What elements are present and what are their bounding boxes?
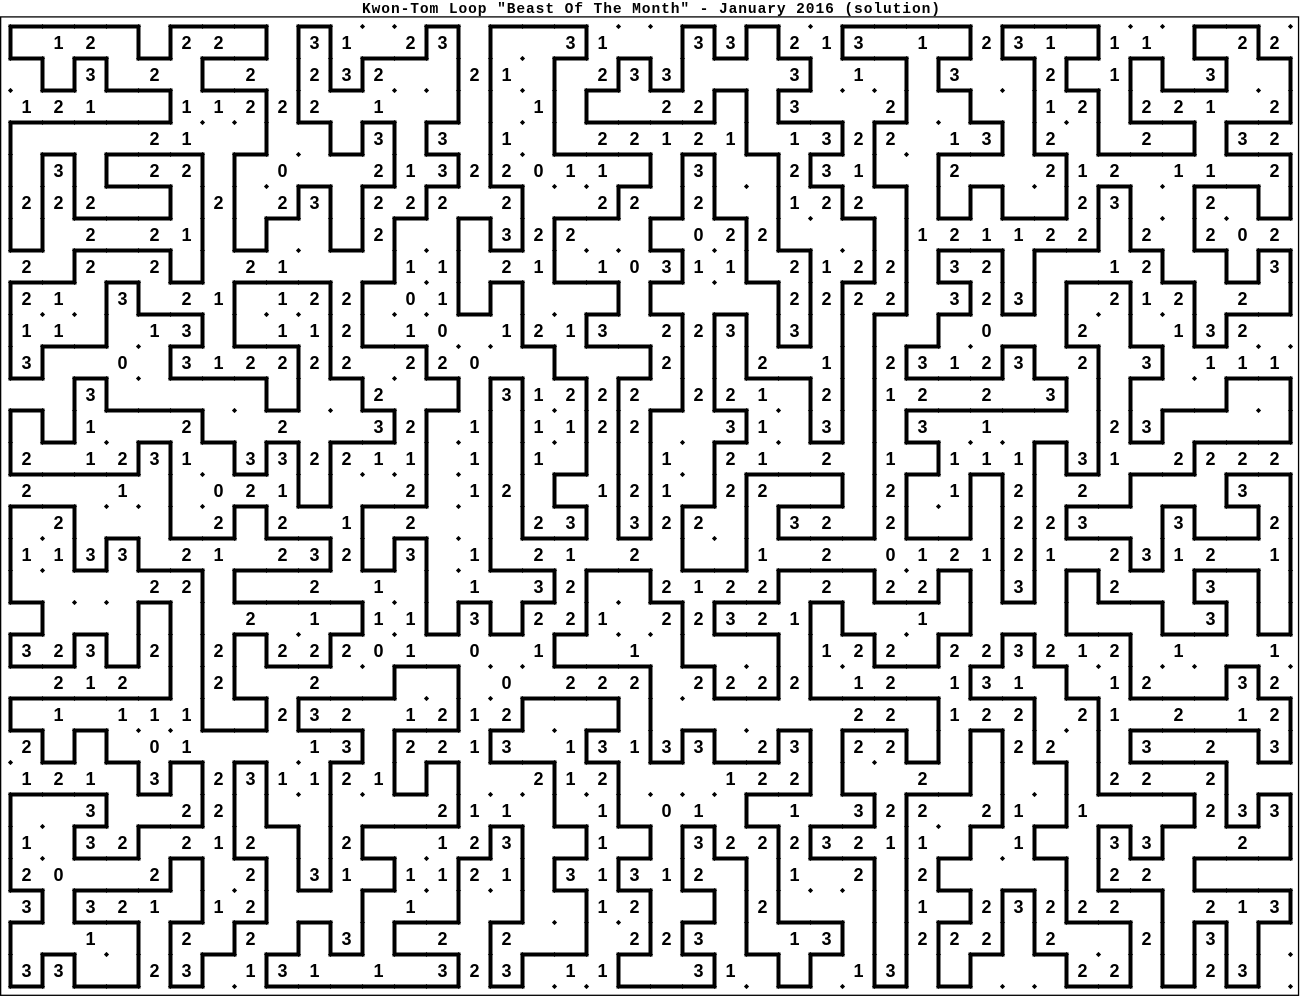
svg-text:2: 2 bbox=[981, 33, 991, 53]
svg-text:2: 2 bbox=[949, 929, 959, 949]
svg-text:0: 0 bbox=[469, 641, 479, 661]
svg-text:3: 3 bbox=[437, 33, 447, 53]
svg-text:1: 1 bbox=[85, 97, 95, 117]
svg-text:3: 3 bbox=[885, 961, 895, 981]
svg-text:3: 3 bbox=[21, 641, 31, 661]
svg-text:3: 3 bbox=[1013, 577, 1023, 597]
svg-text:2: 2 bbox=[885, 577, 895, 597]
svg-text:2: 2 bbox=[181, 289, 191, 309]
svg-text:2: 2 bbox=[213, 193, 223, 213]
svg-text:3: 3 bbox=[789, 513, 799, 533]
svg-text:1: 1 bbox=[565, 769, 575, 789]
svg-text:2: 2 bbox=[53, 193, 63, 213]
svg-text:2: 2 bbox=[949, 225, 959, 245]
svg-text:1: 1 bbox=[597, 801, 607, 821]
svg-text:1: 1 bbox=[533, 385, 543, 405]
svg-text:3: 3 bbox=[1237, 961, 1247, 981]
svg-text:2: 2 bbox=[1109, 897, 1119, 917]
svg-text:2: 2 bbox=[949, 641, 959, 661]
svg-text:1: 1 bbox=[1013, 833, 1023, 853]
svg-text:1: 1 bbox=[117, 705, 127, 725]
svg-text:1: 1 bbox=[213, 289, 223, 309]
svg-text:1: 1 bbox=[1109, 257, 1119, 277]
svg-text:3: 3 bbox=[53, 961, 63, 981]
svg-text:2: 2 bbox=[469, 961, 479, 981]
svg-text:0: 0 bbox=[437, 321, 447, 341]
svg-text:2: 2 bbox=[629, 193, 639, 213]
svg-text:2: 2 bbox=[597, 673, 607, 693]
svg-text:2: 2 bbox=[853, 129, 863, 149]
svg-text:3: 3 bbox=[1237, 129, 1247, 149]
svg-text:0: 0 bbox=[469, 353, 479, 373]
svg-text:3: 3 bbox=[1237, 673, 1247, 693]
svg-text:2: 2 bbox=[245, 929, 255, 949]
svg-text:1: 1 bbox=[757, 449, 767, 469]
svg-text:1: 1 bbox=[1269, 545, 1279, 565]
svg-text:3: 3 bbox=[309, 705, 319, 725]
svg-text:3: 3 bbox=[309, 33, 319, 53]
svg-text:0: 0 bbox=[629, 257, 639, 277]
svg-text:2: 2 bbox=[21, 865, 31, 885]
svg-text:1: 1 bbox=[405, 641, 415, 661]
svg-text:2: 2 bbox=[341, 321, 351, 341]
svg-text:1: 1 bbox=[597, 865, 607, 885]
svg-text:1: 1 bbox=[1013, 449, 1023, 469]
svg-text:1: 1 bbox=[565, 961, 575, 981]
svg-text:2: 2 bbox=[789, 161, 799, 181]
svg-text:3: 3 bbox=[1013, 641, 1023, 661]
svg-text:1: 1 bbox=[309, 609, 319, 629]
svg-text:3: 3 bbox=[917, 417, 927, 437]
svg-text:2: 2 bbox=[21, 289, 31, 309]
svg-text:2: 2 bbox=[1109, 417, 1119, 437]
svg-text:2: 2 bbox=[757, 769, 767, 789]
svg-text:2: 2 bbox=[181, 929, 191, 949]
svg-text:3: 3 bbox=[85, 833, 95, 853]
svg-text:2: 2 bbox=[437, 737, 447, 757]
svg-text:1: 1 bbox=[341, 865, 351, 885]
svg-text:2: 2 bbox=[341, 769, 351, 789]
svg-text:1: 1 bbox=[405, 705, 415, 725]
svg-text:2: 2 bbox=[693, 673, 703, 693]
svg-text:1: 1 bbox=[85, 769, 95, 789]
svg-text:0: 0 bbox=[501, 673, 511, 693]
svg-text:2: 2 bbox=[117, 673, 127, 693]
svg-text:3: 3 bbox=[725, 33, 735, 53]
svg-text:2: 2 bbox=[1109, 769, 1119, 789]
svg-text:2: 2 bbox=[1269, 161, 1279, 181]
svg-text:2: 2 bbox=[21, 193, 31, 213]
svg-text:1: 1 bbox=[1013, 225, 1023, 245]
svg-text:2: 2 bbox=[565, 673, 575, 693]
svg-text:2: 2 bbox=[1077, 353, 1087, 373]
svg-text:3: 3 bbox=[501, 225, 511, 245]
svg-text:2: 2 bbox=[149, 161, 159, 181]
svg-text:1: 1 bbox=[789, 193, 799, 213]
svg-text:1: 1 bbox=[1237, 897, 1247, 917]
svg-text:1: 1 bbox=[501, 129, 511, 149]
svg-text:2: 2 bbox=[1237, 33, 1247, 53]
svg-text:1: 1 bbox=[85, 929, 95, 949]
svg-text:3: 3 bbox=[1141, 737, 1151, 757]
svg-text:2: 2 bbox=[693, 97, 703, 117]
svg-text:2: 2 bbox=[85, 193, 95, 213]
svg-text:3: 3 bbox=[1173, 513, 1183, 533]
svg-text:1: 1 bbox=[597, 257, 607, 277]
svg-text:3: 3 bbox=[821, 929, 831, 949]
svg-text:2: 2 bbox=[181, 545, 191, 565]
svg-text:1: 1 bbox=[53, 545, 63, 565]
svg-text:1: 1 bbox=[661, 129, 671, 149]
svg-text:2: 2 bbox=[885, 513, 895, 533]
svg-text:1: 1 bbox=[917, 545, 927, 565]
svg-text:1: 1 bbox=[885, 449, 895, 469]
svg-text:1: 1 bbox=[373, 97, 383, 117]
svg-text:2: 2 bbox=[565, 225, 575, 245]
svg-text:1: 1 bbox=[1045, 33, 1055, 53]
svg-text:2: 2 bbox=[341, 545, 351, 565]
svg-text:2: 2 bbox=[501, 929, 511, 949]
svg-text:2: 2 bbox=[309, 673, 319, 693]
svg-text:1: 1 bbox=[789, 609, 799, 629]
svg-text:1: 1 bbox=[597, 897, 607, 917]
svg-text:2: 2 bbox=[149, 961, 159, 981]
svg-text:2: 2 bbox=[1013, 513, 1023, 533]
svg-text:1: 1 bbox=[725, 129, 735, 149]
svg-text:3: 3 bbox=[693, 833, 703, 853]
svg-text:2: 2 bbox=[949, 545, 959, 565]
svg-text:1: 1 bbox=[597, 961, 607, 981]
svg-text:1: 1 bbox=[437, 833, 447, 853]
svg-text:1: 1 bbox=[469, 801, 479, 821]
svg-text:1: 1 bbox=[277, 481, 287, 501]
svg-text:2: 2 bbox=[1045, 225, 1055, 245]
svg-text:1: 1 bbox=[853, 65, 863, 85]
svg-text:1: 1 bbox=[949, 673, 959, 693]
svg-text:3: 3 bbox=[1045, 385, 1055, 405]
svg-text:2: 2 bbox=[821, 577, 831, 597]
svg-text:2: 2 bbox=[245, 257, 255, 277]
svg-text:2: 2 bbox=[821, 385, 831, 405]
svg-text:2: 2 bbox=[917, 385, 927, 405]
svg-text:2: 2 bbox=[565, 609, 575, 629]
svg-text:2: 2 bbox=[853, 705, 863, 725]
svg-text:1: 1 bbox=[533, 417, 543, 437]
svg-text:2: 2 bbox=[1269, 129, 1279, 149]
svg-text:1: 1 bbox=[21, 833, 31, 853]
svg-text:3: 3 bbox=[789, 97, 799, 117]
svg-text:2: 2 bbox=[853, 833, 863, 853]
svg-text:1: 1 bbox=[789, 129, 799, 149]
svg-text:1: 1 bbox=[469, 545, 479, 565]
svg-text:2: 2 bbox=[1045, 513, 1055, 533]
svg-text:3: 3 bbox=[693, 929, 703, 949]
svg-text:2: 2 bbox=[693, 609, 703, 629]
svg-text:1: 1 bbox=[373, 449, 383, 469]
svg-text:3: 3 bbox=[1141, 353, 1151, 373]
svg-text:2: 2 bbox=[213, 33, 223, 53]
svg-text:1: 1 bbox=[181, 97, 191, 117]
svg-text:2: 2 bbox=[821, 449, 831, 469]
svg-text:2: 2 bbox=[309, 97, 319, 117]
svg-text:2: 2 bbox=[661, 513, 671, 533]
svg-text:3: 3 bbox=[629, 865, 639, 885]
svg-text:2: 2 bbox=[725, 673, 735, 693]
svg-text:2: 2 bbox=[21, 257, 31, 277]
svg-text:2: 2 bbox=[853, 737, 863, 757]
svg-text:1: 1 bbox=[789, 929, 799, 949]
svg-text:2: 2 bbox=[885, 481, 895, 501]
svg-text:1: 1 bbox=[533, 641, 543, 661]
svg-text:2: 2 bbox=[213, 641, 223, 661]
svg-text:0: 0 bbox=[117, 353, 127, 373]
svg-text:2: 2 bbox=[85, 33, 95, 53]
svg-text:0: 0 bbox=[1237, 225, 1247, 245]
svg-text:2: 2 bbox=[1045, 641, 1055, 661]
svg-text:2: 2 bbox=[821, 545, 831, 565]
svg-text:2: 2 bbox=[757, 737, 767, 757]
svg-text:1: 1 bbox=[949, 705, 959, 725]
svg-text:2: 2 bbox=[885, 129, 895, 149]
svg-text:2: 2 bbox=[1141, 225, 1151, 245]
svg-text:3: 3 bbox=[1013, 897, 1023, 917]
svg-text:2: 2 bbox=[629, 129, 639, 149]
svg-text:2: 2 bbox=[405, 481, 415, 501]
svg-text:2: 2 bbox=[725, 577, 735, 597]
svg-text:1: 1 bbox=[597, 609, 607, 629]
svg-text:2: 2 bbox=[501, 161, 511, 181]
svg-text:1: 1 bbox=[533, 257, 543, 277]
svg-text:2: 2 bbox=[405, 33, 415, 53]
svg-text:2: 2 bbox=[437, 193, 447, 213]
svg-text:1: 1 bbox=[405, 321, 415, 341]
svg-text:1: 1 bbox=[629, 737, 639, 757]
svg-text:1: 1 bbox=[53, 321, 63, 341]
svg-text:1: 1 bbox=[341, 33, 351, 53]
svg-text:2: 2 bbox=[1205, 225, 1215, 245]
svg-text:1: 1 bbox=[885, 385, 895, 405]
svg-text:2: 2 bbox=[757, 897, 767, 917]
svg-text:3: 3 bbox=[341, 65, 351, 85]
svg-text:2: 2 bbox=[501, 705, 511, 725]
svg-text:2: 2 bbox=[373, 225, 383, 245]
svg-text:2: 2 bbox=[1013, 481, 1023, 501]
svg-text:Kwon-Tom Loop "Beast Of The Mo: Kwon-Tom Loop "Beast Of The Month" - Jan… bbox=[362, 2, 940, 18]
svg-text:3: 3 bbox=[789, 321, 799, 341]
svg-text:3: 3 bbox=[405, 545, 415, 565]
svg-text:2: 2 bbox=[1077, 961, 1087, 981]
svg-text:1: 1 bbox=[181, 705, 191, 725]
svg-text:1: 1 bbox=[1109, 449, 1119, 469]
svg-text:3: 3 bbox=[789, 65, 799, 85]
svg-text:2: 2 bbox=[1269, 705, 1279, 725]
svg-text:2: 2 bbox=[21, 481, 31, 501]
svg-text:1: 1 bbox=[533, 97, 543, 117]
svg-text:1: 1 bbox=[213, 833, 223, 853]
svg-text:3: 3 bbox=[1141, 833, 1151, 853]
svg-text:3: 3 bbox=[693, 961, 703, 981]
svg-text:2: 2 bbox=[85, 225, 95, 245]
svg-text:2: 2 bbox=[533, 225, 543, 245]
svg-text:2: 2 bbox=[1173, 289, 1183, 309]
svg-text:1: 1 bbox=[21, 545, 31, 565]
svg-text:3: 3 bbox=[1205, 929, 1215, 949]
svg-text:1: 1 bbox=[53, 705, 63, 725]
svg-text:3: 3 bbox=[821, 417, 831, 437]
svg-text:2: 2 bbox=[245, 481, 255, 501]
svg-text:2: 2 bbox=[1237, 321, 1247, 341]
svg-text:2: 2 bbox=[277, 545, 287, 565]
svg-text:2: 2 bbox=[181, 161, 191, 181]
svg-text:2: 2 bbox=[533, 545, 543, 565]
svg-text:2: 2 bbox=[149, 257, 159, 277]
svg-text:2: 2 bbox=[277, 513, 287, 533]
svg-text:1: 1 bbox=[565, 545, 575, 565]
svg-text:1: 1 bbox=[1013, 801, 1023, 821]
svg-text:2: 2 bbox=[501, 193, 511, 213]
svg-text:3: 3 bbox=[1013, 33, 1023, 53]
svg-text:1: 1 bbox=[1141, 33, 1151, 53]
svg-text:3: 3 bbox=[501, 961, 511, 981]
svg-text:2: 2 bbox=[1109, 289, 1119, 309]
svg-text:1: 1 bbox=[1077, 801, 1087, 821]
svg-text:2: 2 bbox=[693, 385, 703, 405]
svg-text:2: 2 bbox=[277, 193, 287, 213]
svg-text:0: 0 bbox=[277, 161, 287, 181]
svg-text:2: 2 bbox=[1205, 545, 1215, 565]
svg-text:2: 2 bbox=[789, 289, 799, 309]
svg-text:2: 2 bbox=[757, 481, 767, 501]
svg-text:2: 2 bbox=[789, 833, 799, 853]
svg-text:3: 3 bbox=[1013, 353, 1023, 373]
svg-text:2: 2 bbox=[725, 833, 735, 853]
svg-text:2: 2 bbox=[1269, 33, 1279, 53]
svg-text:2: 2 bbox=[309, 449, 319, 469]
svg-text:1: 1 bbox=[469, 417, 479, 437]
svg-text:2: 2 bbox=[1269, 97, 1279, 117]
svg-text:2: 2 bbox=[213, 513, 223, 533]
svg-text:2: 2 bbox=[213, 801, 223, 821]
svg-text:2: 2 bbox=[1205, 961, 1215, 981]
svg-text:1: 1 bbox=[469, 737, 479, 757]
svg-text:3: 3 bbox=[341, 737, 351, 757]
svg-text:1: 1 bbox=[629, 641, 639, 661]
svg-text:1: 1 bbox=[117, 481, 127, 501]
svg-text:2: 2 bbox=[1045, 897, 1055, 917]
svg-text:2: 2 bbox=[629, 385, 639, 405]
svg-text:1: 1 bbox=[501, 65, 511, 85]
svg-text:2: 2 bbox=[213, 769, 223, 789]
svg-text:2: 2 bbox=[1269, 225, 1279, 245]
svg-text:2: 2 bbox=[181, 577, 191, 597]
svg-text:1: 1 bbox=[853, 673, 863, 693]
svg-text:2: 2 bbox=[853, 641, 863, 661]
svg-text:1: 1 bbox=[85, 449, 95, 469]
svg-text:1: 1 bbox=[309, 321, 319, 341]
svg-text:1: 1 bbox=[1045, 545, 1055, 565]
svg-text:2: 2 bbox=[629, 545, 639, 565]
svg-text:2: 2 bbox=[1205, 897, 1215, 917]
svg-text:3: 3 bbox=[117, 545, 127, 565]
svg-text:2: 2 bbox=[1141, 769, 1151, 789]
svg-text:2: 2 bbox=[437, 705, 447, 725]
svg-text:3: 3 bbox=[949, 65, 959, 85]
svg-text:1: 1 bbox=[181, 129, 191, 149]
svg-text:2: 2 bbox=[1077, 481, 1087, 501]
svg-text:2: 2 bbox=[53, 641, 63, 661]
svg-text:1: 1 bbox=[373, 769, 383, 789]
svg-text:1: 1 bbox=[565, 737, 575, 757]
svg-text:1: 1 bbox=[21, 321, 31, 341]
svg-text:1: 1 bbox=[373, 577, 383, 597]
svg-text:2: 2 bbox=[1269, 513, 1279, 533]
svg-text:3: 3 bbox=[21, 897, 31, 917]
svg-text:1: 1 bbox=[213, 97, 223, 117]
svg-text:3: 3 bbox=[149, 449, 159, 469]
svg-text:3: 3 bbox=[1269, 897, 1279, 917]
svg-text:2: 2 bbox=[853, 257, 863, 277]
svg-text:2: 2 bbox=[693, 865, 703, 885]
svg-text:1: 1 bbox=[277, 769, 287, 789]
svg-text:3: 3 bbox=[1269, 801, 1279, 821]
svg-text:1: 1 bbox=[181, 449, 191, 469]
svg-text:2: 2 bbox=[341, 641, 351, 661]
svg-text:2: 2 bbox=[885, 641, 895, 661]
svg-text:2: 2 bbox=[53, 513, 63, 533]
svg-text:1: 1 bbox=[853, 161, 863, 181]
svg-text:2: 2 bbox=[1013, 545, 1023, 565]
svg-text:3: 3 bbox=[309, 193, 319, 213]
svg-text:3: 3 bbox=[85, 897, 95, 917]
svg-text:1: 1 bbox=[1173, 641, 1183, 661]
svg-text:2: 2 bbox=[405, 193, 415, 213]
svg-text:2: 2 bbox=[405, 353, 415, 373]
svg-text:2: 2 bbox=[85, 257, 95, 277]
svg-text:3: 3 bbox=[821, 161, 831, 181]
svg-text:2: 2 bbox=[1109, 545, 1119, 565]
svg-text:1: 1 bbox=[85, 417, 95, 437]
svg-text:2: 2 bbox=[725, 449, 735, 469]
svg-text:2: 2 bbox=[789, 673, 799, 693]
svg-text:1: 1 bbox=[501, 865, 511, 885]
svg-text:2: 2 bbox=[309, 577, 319, 597]
svg-text:3: 3 bbox=[501, 737, 511, 757]
svg-text:1: 1 bbox=[725, 257, 735, 277]
svg-text:2: 2 bbox=[981, 257, 991, 277]
svg-text:3: 3 bbox=[1269, 737, 1279, 757]
svg-text:2: 2 bbox=[341, 449, 351, 469]
svg-text:2: 2 bbox=[597, 193, 607, 213]
svg-text:1: 1 bbox=[309, 737, 319, 757]
svg-text:1: 1 bbox=[213, 897, 223, 917]
svg-text:2: 2 bbox=[821, 513, 831, 533]
svg-text:3: 3 bbox=[501, 385, 511, 405]
svg-text:2: 2 bbox=[1141, 97, 1151, 117]
svg-text:1: 1 bbox=[693, 577, 703, 597]
svg-text:2: 2 bbox=[181, 417, 191, 437]
svg-text:3: 3 bbox=[85, 801, 95, 821]
svg-text:2: 2 bbox=[533, 609, 543, 629]
svg-text:1: 1 bbox=[757, 417, 767, 437]
svg-text:3: 3 bbox=[1237, 481, 1247, 501]
svg-text:2: 2 bbox=[853, 865, 863, 885]
svg-text:2: 2 bbox=[437, 929, 447, 949]
svg-text:1: 1 bbox=[1141, 289, 1151, 309]
svg-text:1: 1 bbox=[405, 449, 415, 469]
svg-text:2: 2 bbox=[885, 289, 895, 309]
svg-text:2: 2 bbox=[437, 353, 447, 373]
svg-text:2: 2 bbox=[725, 481, 735, 501]
